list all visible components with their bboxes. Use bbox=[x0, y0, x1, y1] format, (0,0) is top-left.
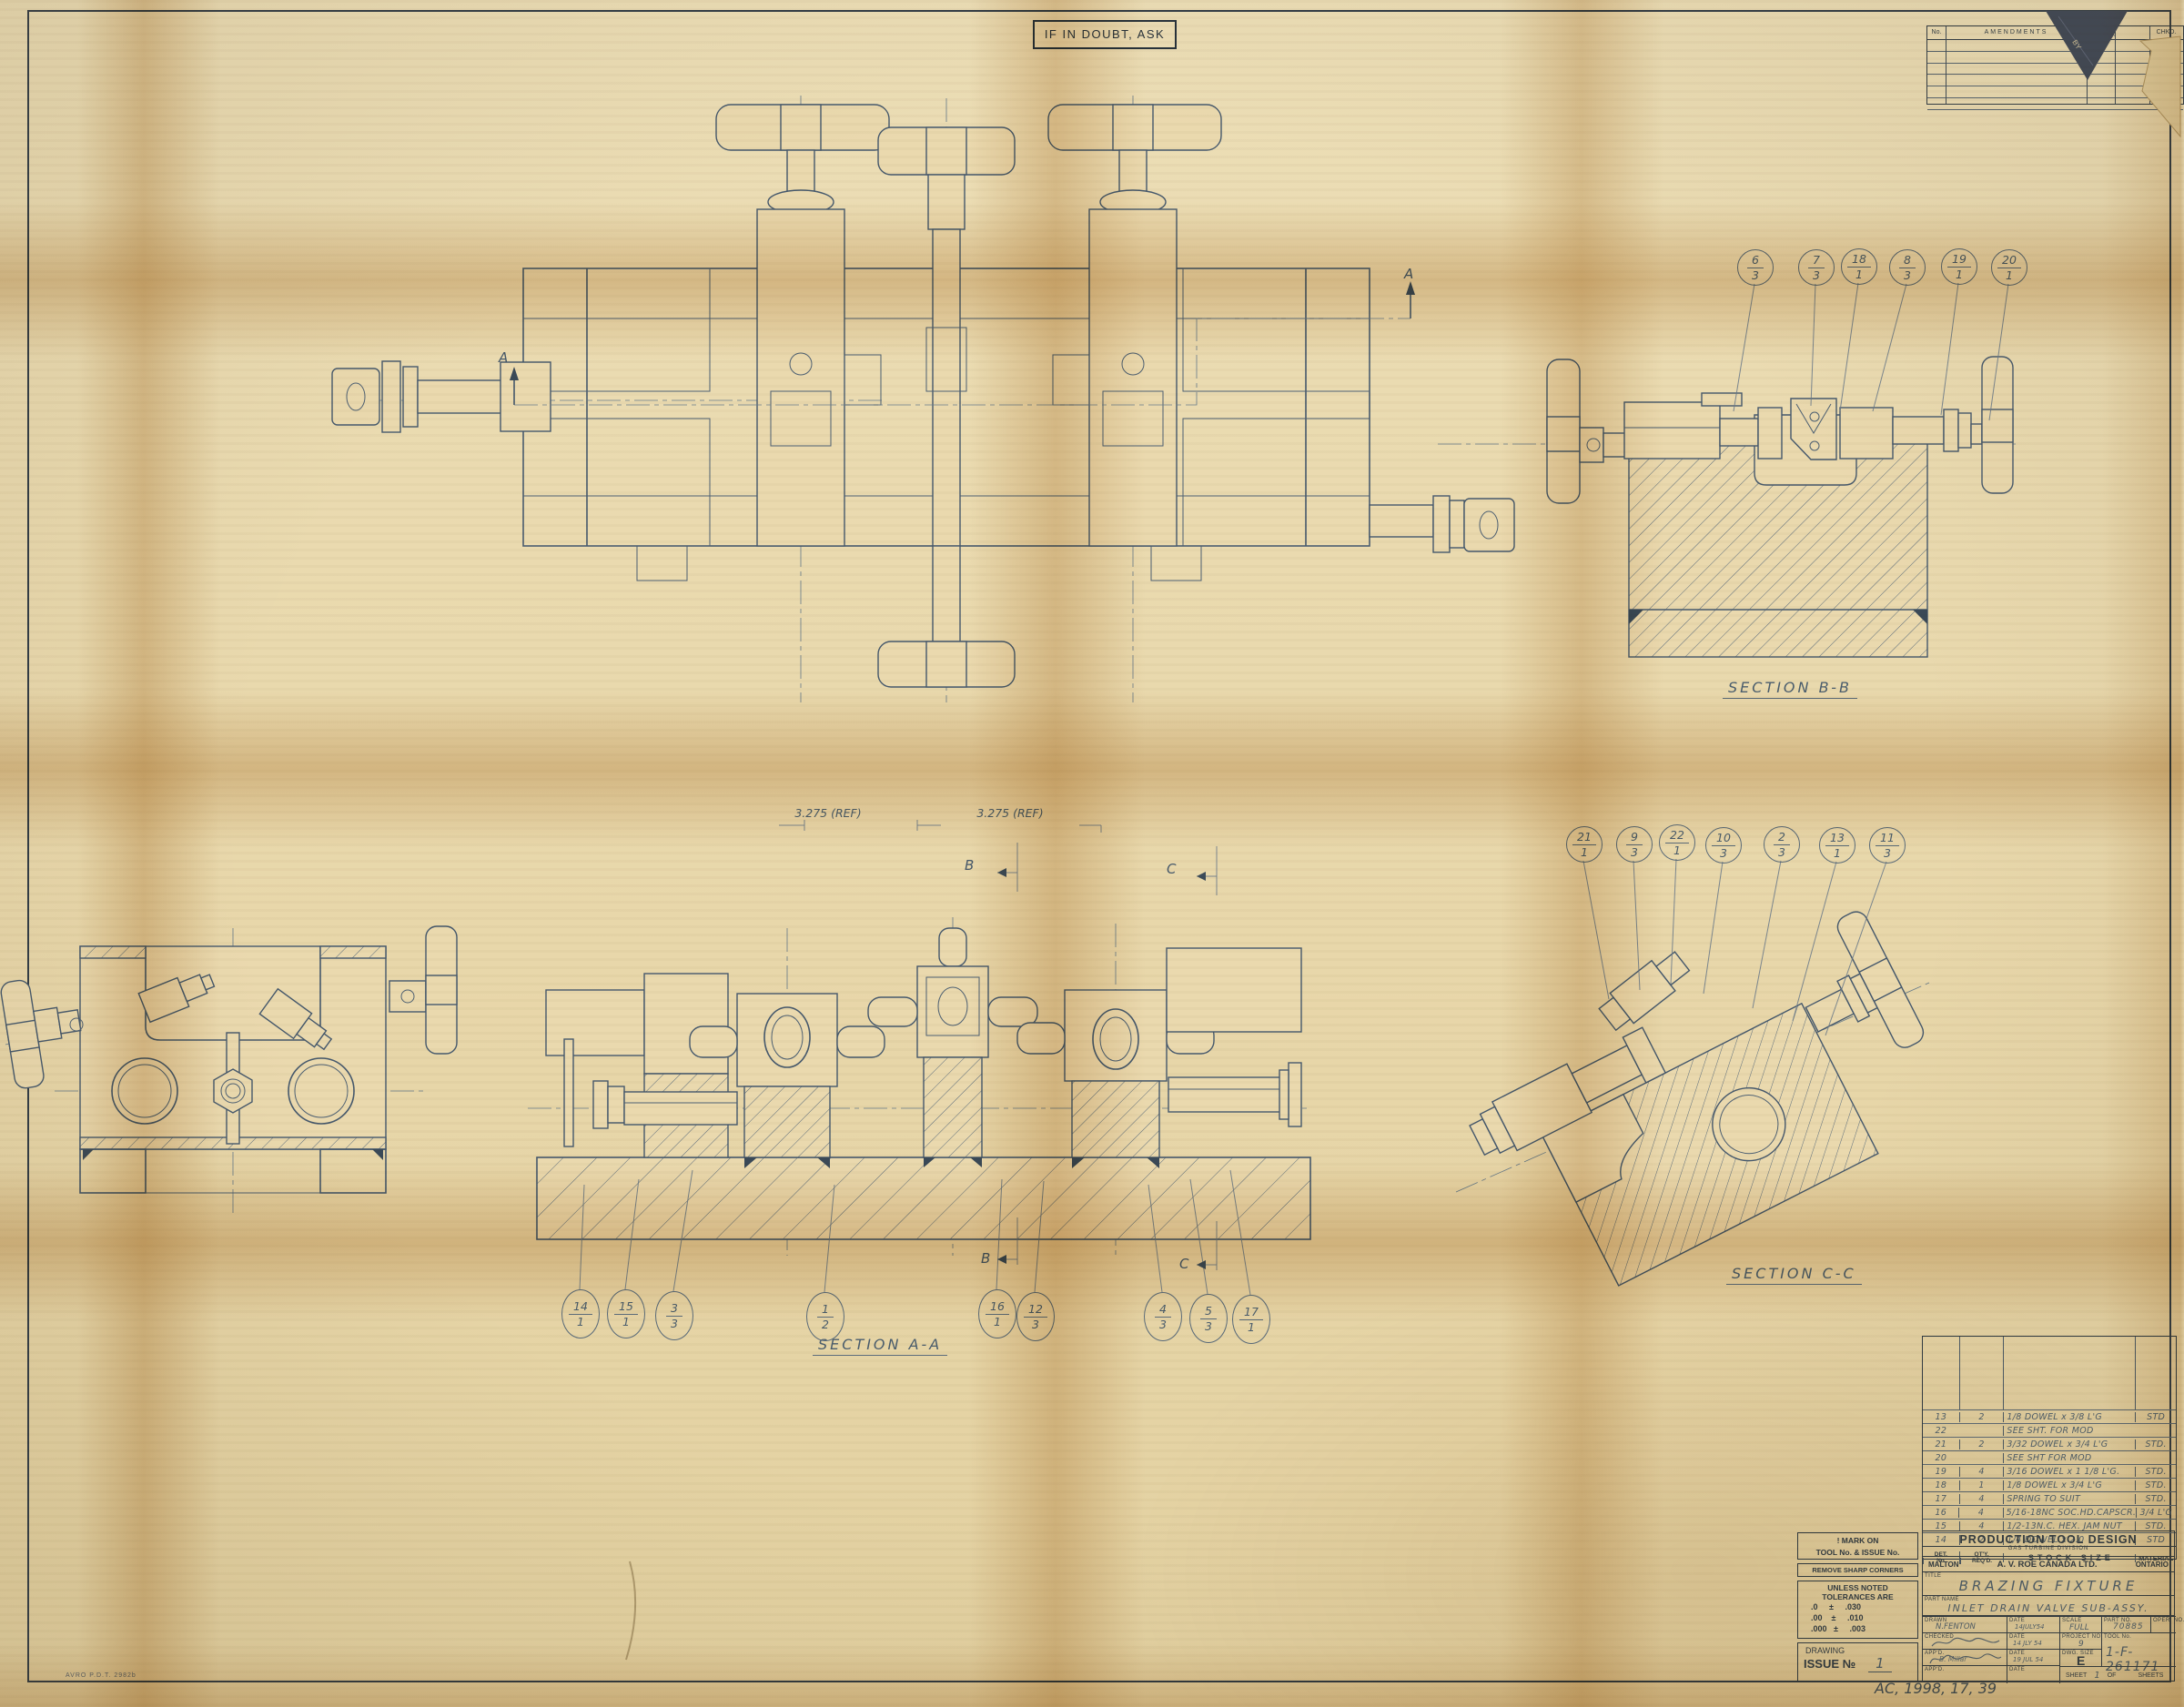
balloon-qty: 3 bbox=[1813, 268, 1820, 281]
balloon-detail-no: 6 bbox=[1747, 254, 1764, 268]
balloon-qty: 3 bbox=[1752, 268, 1759, 281]
balloon-callout: 201 bbox=[1991, 249, 2027, 286]
dimension-ref-left: 3.275 (REF) bbox=[764, 806, 892, 820]
balloon-detail-no: 4 bbox=[1155, 1303, 1171, 1317]
plate-code: AVRO P.D.T. 2982b bbox=[66, 1672, 136, 1679]
balloon-qty: 3 bbox=[1720, 846, 1727, 859]
balloon-callout: 63 bbox=[1737, 249, 1774, 286]
balloon-callout: 123 bbox=[1016, 1292, 1055, 1341]
folded-corner bbox=[2046, 11, 2128, 80]
balloon-detail-no: 9 bbox=[1626, 831, 1643, 844]
balloon-qty: 1 bbox=[1956, 268, 1963, 280]
balloon-callout: 23 bbox=[1764, 826, 1800, 863]
balloon-qty: 1 bbox=[1673, 843, 1681, 856]
balloon-qty: 3 bbox=[1631, 845, 1638, 858]
balloon-detail-no: 1 bbox=[817, 1303, 834, 1317]
dimension-ref-right: 3.275 (REF) bbox=[946, 806, 1074, 820]
section-marker-a-left: A bbox=[499, 349, 508, 366]
balloon-detail-no: 20 bbox=[1997, 254, 2021, 268]
section-marker-c-bottom: C bbox=[1179, 1256, 1188, 1272]
balloon-qty: 3 bbox=[671, 1317, 678, 1329]
balloon-detail-no: 21 bbox=[1572, 831, 1596, 844]
balloon-callout: 103 bbox=[1705, 827, 1742, 864]
balloon-callout: 33 bbox=[655, 1291, 693, 1340]
balloon-callout: 131 bbox=[1819, 827, 1855, 864]
section-marker-b-bottom: B bbox=[981, 1250, 990, 1267]
section-marker-b-top: B bbox=[965, 857, 974, 874]
balloon-detail-no: 15 bbox=[614, 1300, 638, 1314]
balloon-callout: 43 bbox=[1144, 1292, 1182, 1341]
balloon-detail-no: 5 bbox=[1200, 1305, 1217, 1318]
balloon-callout: 221 bbox=[1659, 824, 1695, 861]
balloon-callout: 151 bbox=[607, 1289, 645, 1338]
balloon-detail-no: 7 bbox=[1808, 254, 1825, 268]
archive-note: AC, 1998, 17, 39 bbox=[1875, 1680, 1997, 1697]
blueprint-sheet: IF IN DOUBT, ASK bbox=[0, 0, 2184, 1707]
balloon-callout: 161 bbox=[978, 1289, 1016, 1338]
balloon-callout: 141 bbox=[561, 1289, 600, 1338]
balloon-callout: 191 bbox=[1941, 248, 1977, 285]
section-marker-c-top: C bbox=[1167, 861, 1176, 877]
balloon-callout: 73 bbox=[1798, 249, 1835, 286]
balloon-callout: 181 bbox=[1841, 248, 1877, 285]
balloon-qty: 1 bbox=[622, 1315, 630, 1328]
balloon-detail-no: 19 bbox=[1947, 253, 1971, 267]
balloon-detail-no: 2 bbox=[1774, 831, 1790, 844]
balloon-qty: 3 bbox=[1778, 845, 1785, 858]
balloon-callout: 93 bbox=[1616, 826, 1653, 863]
section-cc-label: SECTION C-C bbox=[1726, 1265, 1862, 1285]
balloon-detail-no: 14 bbox=[569, 1300, 592, 1314]
balloon-callout: 113 bbox=[1869, 827, 1906, 864]
balloon-callout: 83 bbox=[1889, 249, 1926, 286]
paper-crease bbox=[626, 1561, 635, 1660]
balloon-detail-no: 8 bbox=[1899, 254, 1916, 268]
balloon-qty: 1 bbox=[1581, 845, 1588, 858]
balloon-detail-no: 18 bbox=[1847, 253, 1871, 267]
balloon-detail-no: 11 bbox=[1876, 832, 1899, 845]
balloon-qty: 1 bbox=[577, 1315, 584, 1328]
section-marker-a-right: A bbox=[1404, 266, 1413, 282]
balloon-qty: 1 bbox=[1834, 846, 1841, 859]
balloon-qty: 3 bbox=[1159, 1318, 1167, 1330]
balloon-qty: 1 bbox=[1248, 1320, 1255, 1333]
balloon-detail-no: 10 bbox=[1712, 832, 1735, 845]
balloon-callout: 171 bbox=[1232, 1295, 1270, 1344]
balloon-callout: 211 bbox=[1566, 826, 1603, 863]
balloon-qty: 3 bbox=[1032, 1318, 1039, 1330]
balloon-detail-no: 12 bbox=[1024, 1303, 1047, 1317]
balloon-detail-no: 13 bbox=[1825, 832, 1849, 845]
balloon-qty: 1 bbox=[994, 1315, 1001, 1328]
balloon-callout: 53 bbox=[1189, 1294, 1228, 1343]
balloon-qty: 2 bbox=[822, 1318, 829, 1330]
balloon-detail-no: 17 bbox=[1239, 1306, 1263, 1319]
balloon-detail-no: 16 bbox=[986, 1300, 1009, 1314]
balloon-qty: 3 bbox=[1904, 268, 1911, 281]
balloon-qty: 3 bbox=[1884, 846, 1891, 859]
balloon-detail-no: 3 bbox=[666, 1302, 682, 1316]
balloon-qty: 1 bbox=[2006, 268, 2013, 281]
balloon-callout: 12 bbox=[806, 1292, 844, 1341]
paper-tear bbox=[2140, 36, 2180, 136]
balloon-detail-no: 22 bbox=[1665, 829, 1689, 843]
balloon-qty: 3 bbox=[1205, 1319, 1212, 1332]
section-bb-label: SECTION B-B bbox=[1723, 679, 1857, 699]
balloon-qty: 1 bbox=[1855, 268, 1863, 280]
